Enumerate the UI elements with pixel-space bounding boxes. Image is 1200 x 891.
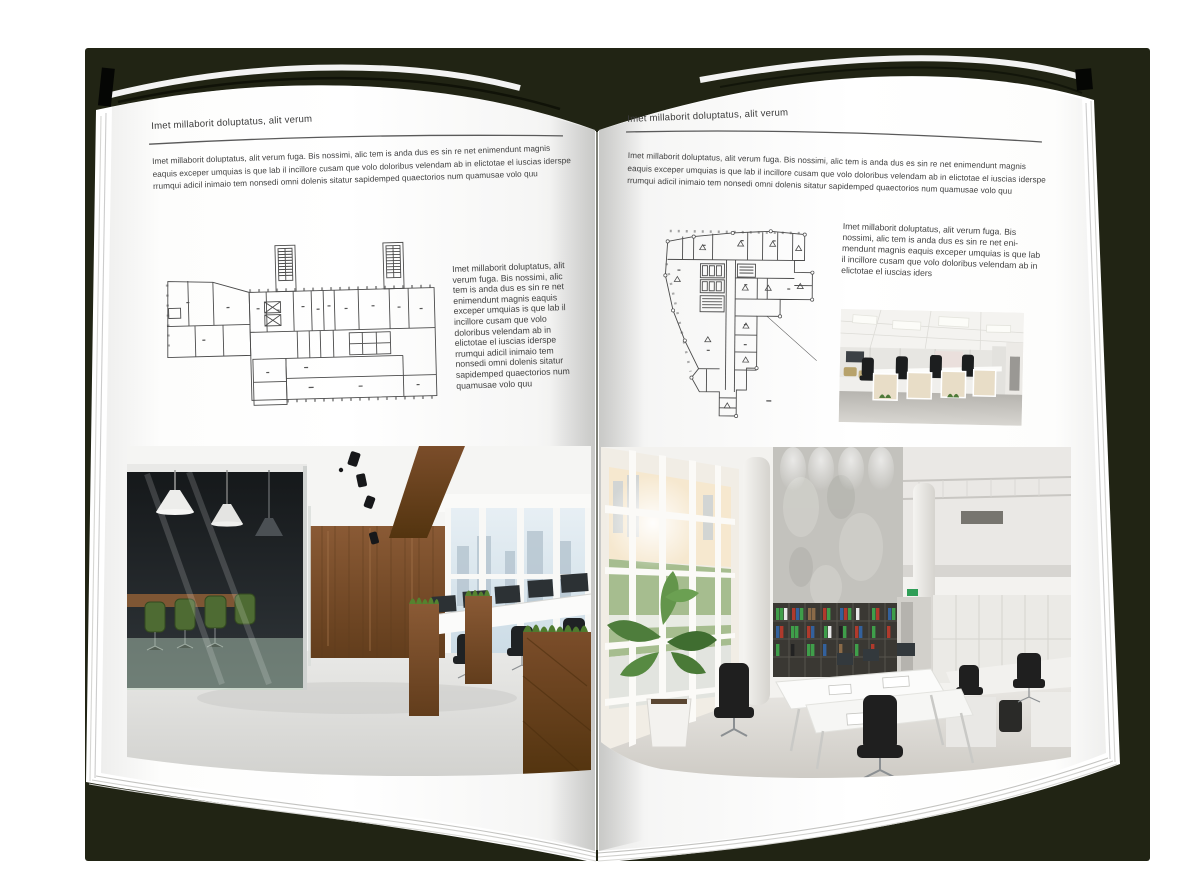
open-book-base <box>0 0 1200 891</box>
right-page-sheet <box>599 78 1106 851</box>
magazine-mockup: Imet millaborit doluptatus, alit verum I… <box>0 0 1200 891</box>
spine-shadow-right <box>599 117 644 851</box>
cover-spine-notch-right <box>1075 68 1093 90</box>
left-page-sheet <box>101 85 595 851</box>
spine-shadow-left <box>550 117 595 851</box>
